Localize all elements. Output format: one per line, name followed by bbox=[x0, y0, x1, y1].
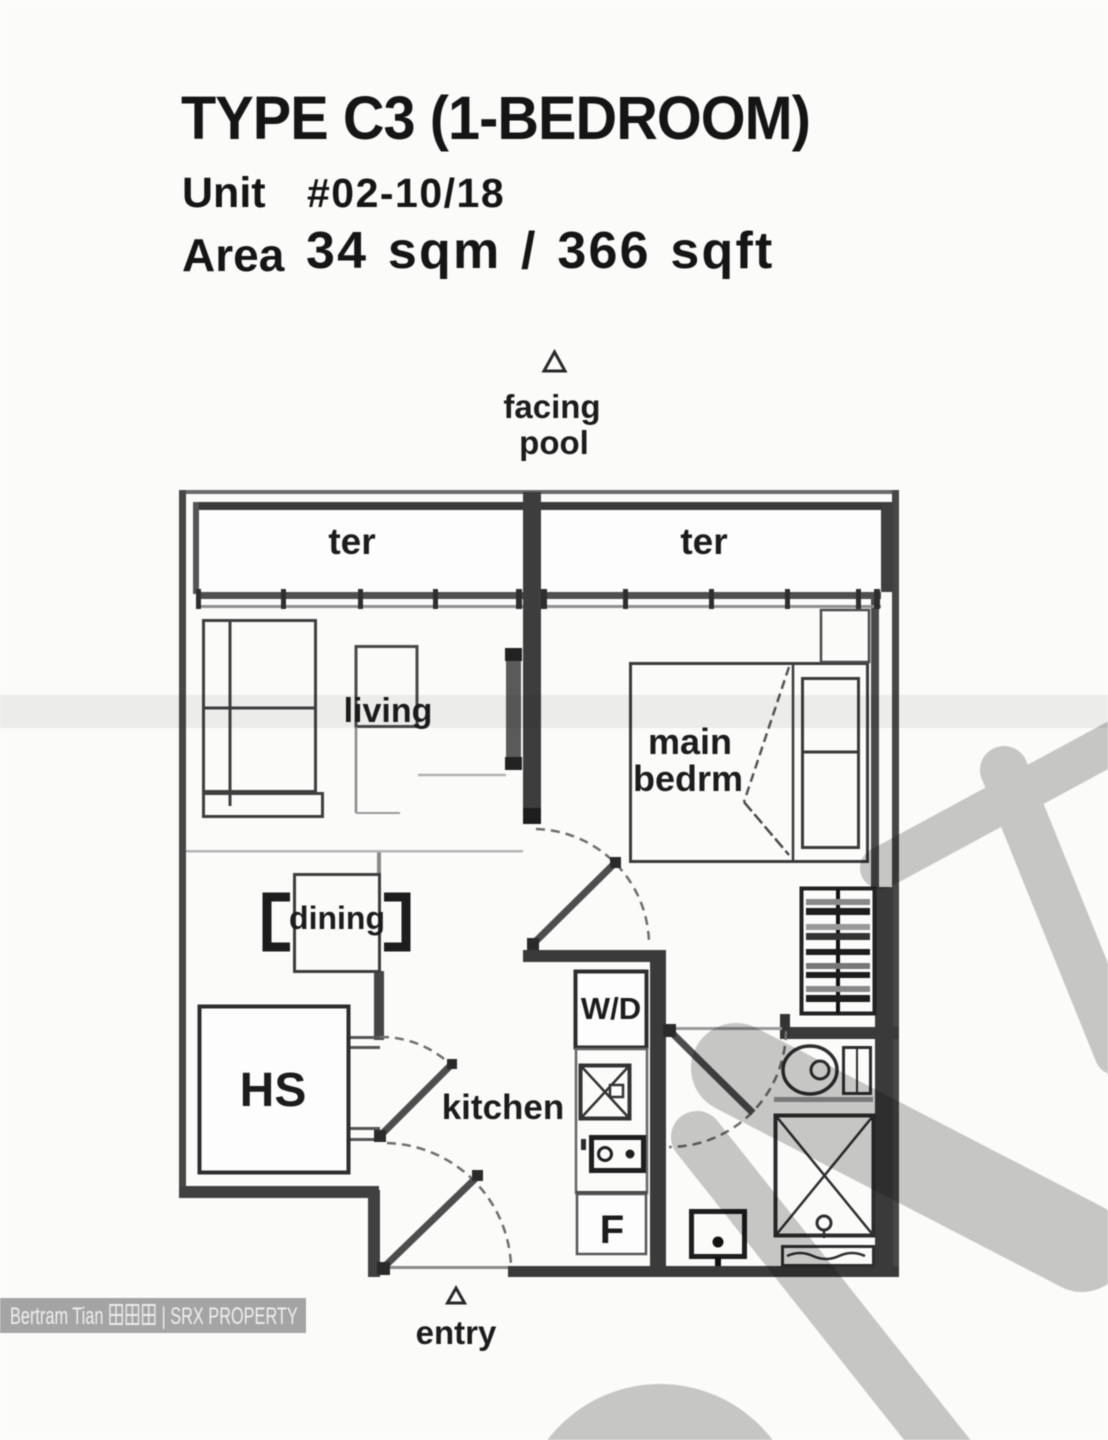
svg-text:ter: ter bbox=[328, 521, 375, 562]
svg-text:facing: facing bbox=[503, 388, 600, 425]
svg-text:bedrm: bedrm bbox=[633, 758, 743, 799]
svg-text:F: F bbox=[600, 1208, 624, 1252]
svg-text:pool: pool bbox=[519, 424, 589, 461]
svg-text:entry: entry bbox=[416, 1314, 497, 1351]
svg-text:W/D: W/D bbox=[581, 991, 641, 1026]
svg-text:kitchen: kitchen bbox=[442, 1088, 565, 1127]
svg-text:HS: HS bbox=[240, 1064, 307, 1117]
svg-text:ter: ter bbox=[680, 521, 727, 562]
svg-text:dining: dining bbox=[289, 900, 385, 936]
